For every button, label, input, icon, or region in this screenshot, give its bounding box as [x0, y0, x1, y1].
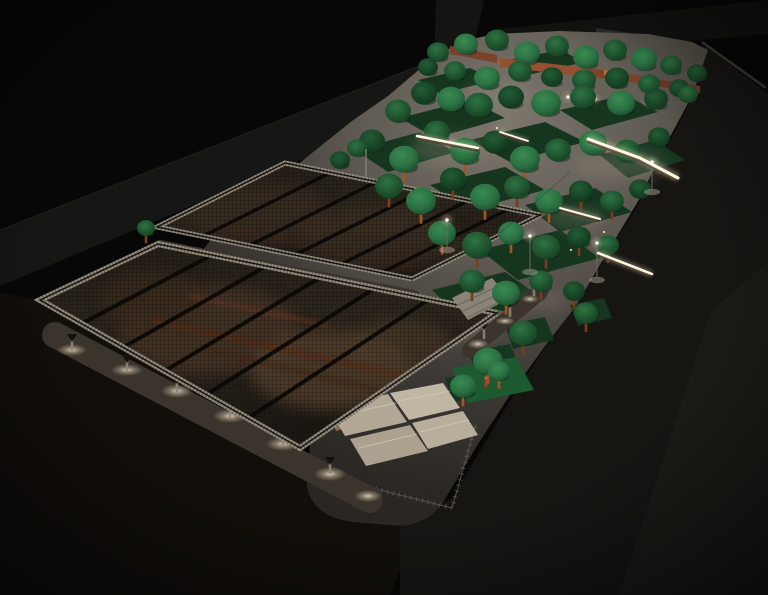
rendering-canvas: [0, 0, 768, 595]
vignette: [0, 0, 768, 595]
night-site-rendering: [0, 0, 768, 595]
vignette-overlay: [0, 0, 768, 595]
